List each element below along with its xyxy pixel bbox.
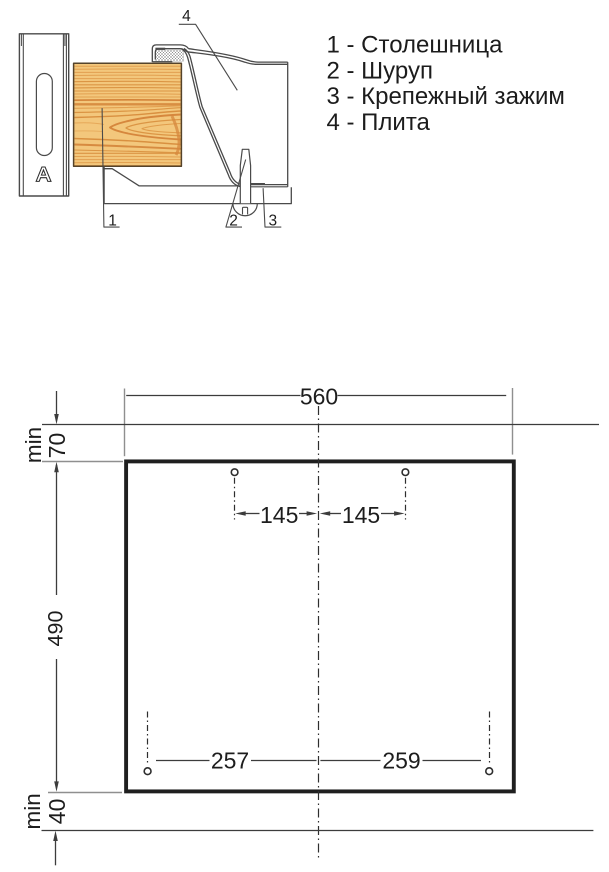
svg-text:4: 4: [182, 8, 191, 25]
svg-text:257: 257: [211, 748, 249, 774]
svg-text:145: 145: [342, 502, 380, 528]
svg-text:560: 560: [300, 384, 338, 410]
svg-text:2: 2: [229, 212, 238, 229]
svg-text:145: 145: [260, 502, 298, 528]
svg-text:min: min: [20, 793, 45, 829]
svg-text:259: 259: [382, 748, 420, 774]
svg-text:490: 490: [44, 611, 68, 647]
svg-text:4 - Плита: 4 - Плита: [327, 109, 431, 136]
svg-text:3 - Крепежный зажим: 3 - Крепежный зажим: [327, 83, 565, 110]
svg-text:40: 40: [44, 799, 70, 825]
svg-text:70: 70: [44, 433, 70, 459]
svg-text:3: 3: [268, 212, 277, 229]
svg-text:min: min: [21, 427, 46, 463]
svg-text:1: 1: [108, 212, 117, 229]
svg-text:1 - Столешница: 1 - Столешница: [327, 32, 504, 59]
svg-text:2 - Шуруп: 2 - Шуруп: [327, 57, 433, 84]
